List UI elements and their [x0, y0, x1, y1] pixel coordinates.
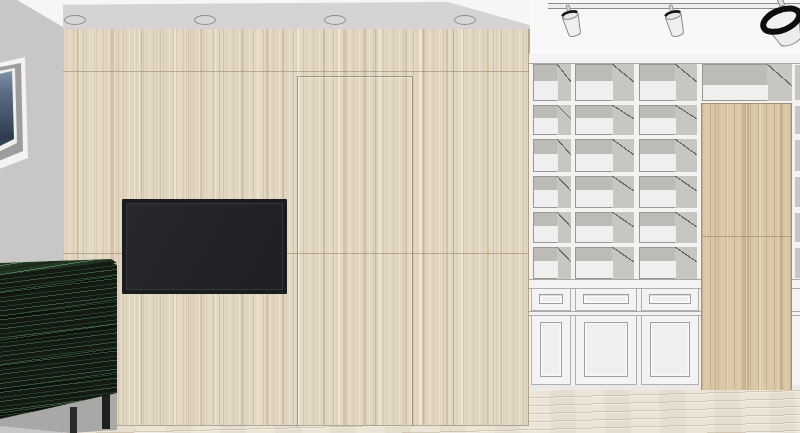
- recessed-downlight: [324, 15, 346, 25]
- shelf-cell: [575, 64, 634, 101]
- shelf-cell: [639, 139, 697, 172]
- shelf-cell-corner-edge: [675, 64, 697, 82]
- shelf-cell-corner-edge: [612, 105, 634, 119]
- shelf-cell-back: [576, 154, 613, 171]
- base-cabinet-door: [575, 315, 637, 385]
- concealed-door-outline: [297, 76, 413, 426]
- green-sideboard: [0, 256, 118, 433]
- sideboard-leg: [70, 407, 77, 433]
- recessed-downlight: [454, 15, 476, 25]
- shelf-cell: [702, 64, 792, 101]
- wall-panel-seam: [63, 71, 529, 72]
- shelf-cell-corner-edge: [557, 139, 571, 155]
- shelf-cell-back: [640, 154, 676, 171]
- shelf-cell-corner-edge: [557, 105, 571, 119]
- shelf-cell-back: [534, 154, 558, 171]
- door-recess-panel: [540, 322, 562, 377]
- shelf-cell-back: [703, 85, 768, 100]
- shelf-cell-back: [640, 81, 676, 100]
- shelf-cell: [533, 64, 571, 101]
- shelf-cell: [639, 64, 697, 101]
- shelf-cell-corner-edge: [557, 64, 571, 82]
- shelf-cell: [639, 176, 697, 208]
- shelf-cell-corner-edge: [675, 247, 697, 262]
- drawer-recess: [649, 294, 691, 304]
- shelf-cell: [639, 212, 697, 243]
- base-cabinet-door: [641, 315, 699, 385]
- wall-panel-seam: [453, 29, 454, 426]
- shelf-right-strip-cell: [795, 140, 800, 171]
- shelf-cell-corner-edge: [767, 64, 792, 86]
- shelf-cell-corner-edge: [612, 64, 634, 82]
- shelf-cell-back: [534, 118, 558, 134]
- shelf-cell-corner-edge: [557, 247, 571, 262]
- shelf-cell-corner-edge: [557, 176, 571, 191]
- drawer-recess: [539, 294, 563, 304]
- shelf-cell: [533, 105, 571, 135]
- shelf-cell-back: [534, 261, 558, 278]
- shelf-cell-back: [534, 81, 558, 100]
- track-spotlight: [553, 5, 587, 41]
- shelf-cell-back: [640, 226, 676, 242]
- shelf-right-strip-cell: [795, 213, 800, 242]
- track-spotlight-close: [752, 0, 800, 46]
- ceiling-soffit: [63, 2, 530, 29]
- sideboard-body: [0, 256, 118, 421]
- built-in-bookshelf: [529, 54, 800, 390]
- shelf-cell-corner-edge: [612, 139, 634, 155]
- drawer-recess: [583, 294, 629, 304]
- shelf-cell-corner-edge: [612, 212, 634, 227]
- track-spotlight: [656, 5, 690, 41]
- shelf-cell-back: [640, 118, 676, 134]
- shelf-cell: [533, 212, 571, 243]
- wood-door-seam: [702, 236, 791, 237]
- shelf-cell: [575, 176, 634, 208]
- shelf-cell-back: [534, 226, 558, 242]
- shelf-right-strip-cell: [795, 248, 800, 278]
- shelf-cell-back: [576, 261, 613, 278]
- shelf-cell-back: [576, 190, 613, 207]
- shelf-right-strip-cell: [795, 65, 800, 100]
- door-recess-panel: [584, 322, 628, 377]
- base-cabinet-door: [531, 315, 571, 385]
- shelf-cell: [533, 139, 571, 172]
- shelf-cell: [575, 139, 634, 172]
- shelf-cell-back: [576, 226, 613, 242]
- wall-panel-seam: [375, 29, 376, 426]
- shelf-cell-corner-edge: [675, 212, 697, 227]
- shelf-cell-corner-edge: [675, 105, 697, 119]
- shelf-cell-corner-edge: [675, 176, 697, 191]
- shelf-cell: [575, 105, 634, 135]
- shelf-cell-back: [534, 190, 558, 207]
- shelf-cell-corner-edge: [675, 139, 697, 155]
- shelf-cell-back: [640, 190, 676, 207]
- shelf-cell: [575, 247, 634, 279]
- base-drawer: [641, 288, 699, 311]
- shelf-right-strip-cell: [795, 177, 800, 207]
- shelf-cell: [533, 247, 571, 279]
- tv-screen: [126, 203, 283, 290]
- shelf-cell: [639, 105, 697, 135]
- shelf-cell-corner-edge: [612, 176, 634, 191]
- shelf-cell-back: [640, 261, 676, 278]
- render-viewport: [0, 0, 800, 433]
- recessed-downlight: [64, 15, 86, 25]
- shelf-cell: [639, 247, 697, 279]
- shelf-cell-corner-edge: [557, 212, 571, 227]
- shelf-right-strip-cell: [795, 106, 800, 134]
- door-recess-panel: [650, 322, 690, 377]
- shelf-cell-back: [576, 81, 613, 100]
- base-drawer: [575, 288, 637, 311]
- bookshelf-cornice: [529, 54, 800, 64]
- wall-mounted-tv: [122, 199, 287, 294]
- shelf-cell-back: [576, 118, 613, 134]
- bookshelf-wood-door-panel: [701, 103, 792, 390]
- shelf-cell: [533, 176, 571, 208]
- base-drawer: [531, 288, 571, 311]
- wall-base-line: [63, 425, 529, 426]
- sideboard-leg: [102, 392, 110, 429]
- shelf-cell-corner-edge: [612, 247, 634, 262]
- shelf-cell: [575, 212, 634, 243]
- ceiling-wall-corner-line: [529, 25, 530, 55]
- recessed-downlight: [194, 15, 216, 25]
